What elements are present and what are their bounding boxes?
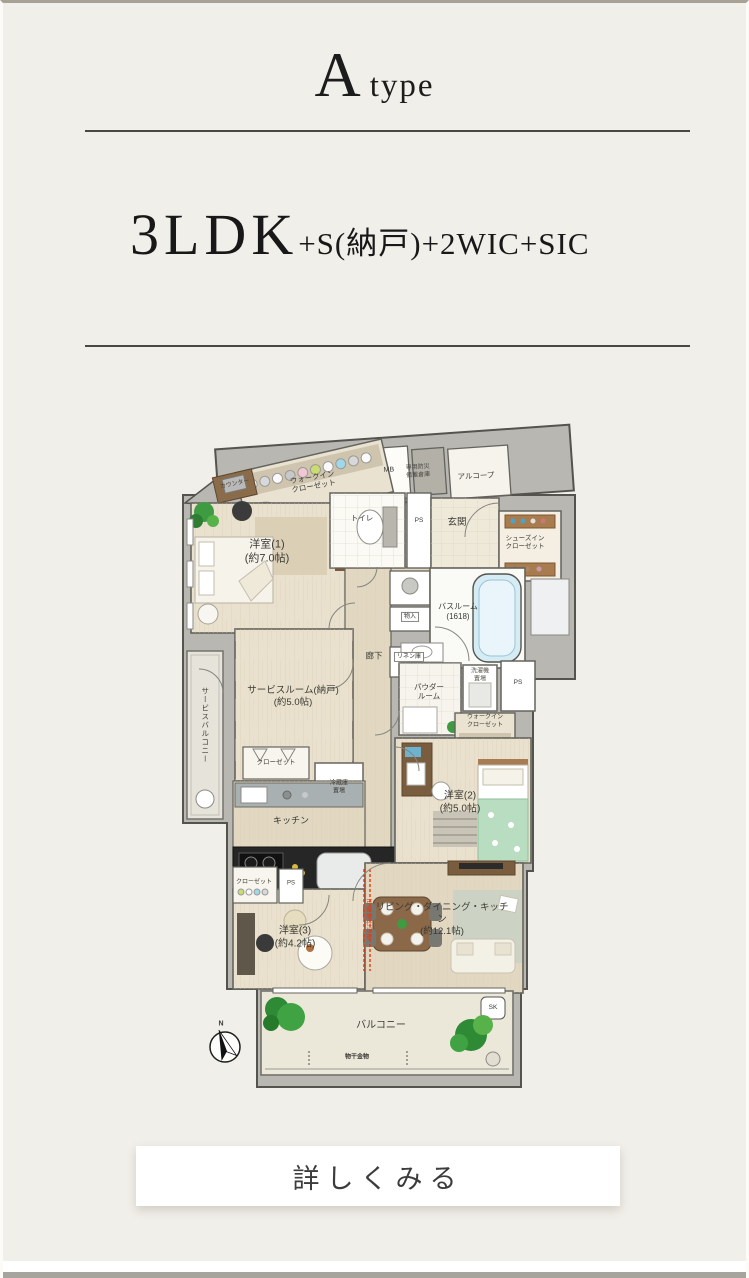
pipe-space-3	[279, 869, 303, 903]
footer-white-strip	[3, 1261, 746, 1272]
window-icon	[187, 519, 193, 545]
laundry-basket-icon	[403, 707, 437, 733]
toilet-tank-icon	[383, 507, 397, 547]
drain-icon	[486, 1052, 500, 1066]
entrance-hall	[431, 498, 499, 569]
type-letter: A	[314, 39, 360, 110]
sliding-door-sill	[273, 988, 357, 993]
window-icon	[187, 561, 193, 587]
dining-set-icon	[363, 897, 442, 951]
chair-icon	[284, 910, 306, 932]
detail-button[interactable]: 詳しくみる	[136, 1146, 620, 1206]
floorplan-card: Atype 3LDK+S(納戸)+2WIC+SIC	[0, 0, 749, 1278]
floorplan: ウォークイン クローゼット カウンター MB 専用防災 備蓄倉庫 アルコープ ト…	[177, 411, 577, 1101]
washer-place	[463, 665, 497, 711]
type-word: type	[370, 68, 435, 104]
bed-icon	[195, 537, 273, 603]
ldk-area	[363, 861, 523, 993]
toilet-icon	[357, 510, 383, 544]
desk-icon	[237, 913, 255, 975]
sink-icon	[317, 853, 371, 891]
pipe-space-1	[407, 493, 431, 568]
divider-top	[85, 130, 690, 132]
closet-1	[243, 747, 309, 779]
closet-2	[233, 867, 277, 903]
compass-icon	[210, 1027, 240, 1062]
layout-spec-main: 3LDK	[130, 202, 298, 267]
layout-spec-suffix: +S(納戸)+2WIC+SIC	[298, 226, 589, 261]
bathtub-inner	[479, 580, 515, 656]
chair-icon	[256, 934, 274, 952]
window-icon	[187, 603, 193, 629]
round-table-icon	[298, 936, 332, 970]
striped-rug-icon	[433, 811, 477, 847]
bed-icon	[478, 759, 528, 861]
bin-icon	[402, 578, 418, 594]
drain-icon	[196, 790, 214, 808]
footer-gray-strip	[3, 1272, 746, 1278]
sliding-door-sill	[373, 988, 505, 993]
equipment-panel	[531, 579, 569, 635]
page-title: Atype	[3, 43, 746, 107]
chair-icon	[232, 501, 252, 521]
toilet-room	[330, 493, 405, 568]
side-table-icon	[198, 604, 218, 624]
floorplan-graphic	[177, 411, 577, 1101]
western-room-2	[395, 738, 531, 863]
divider-bottom	[85, 345, 690, 347]
balcony	[261, 988, 513, 1075]
service-room	[235, 629, 353, 781]
pipe-space-2	[501, 661, 535, 711]
layout-spec: 3LDK+S(納戸)+2WIC+SIC	[130, 203, 590, 282]
service-balcony	[187, 651, 223, 819]
